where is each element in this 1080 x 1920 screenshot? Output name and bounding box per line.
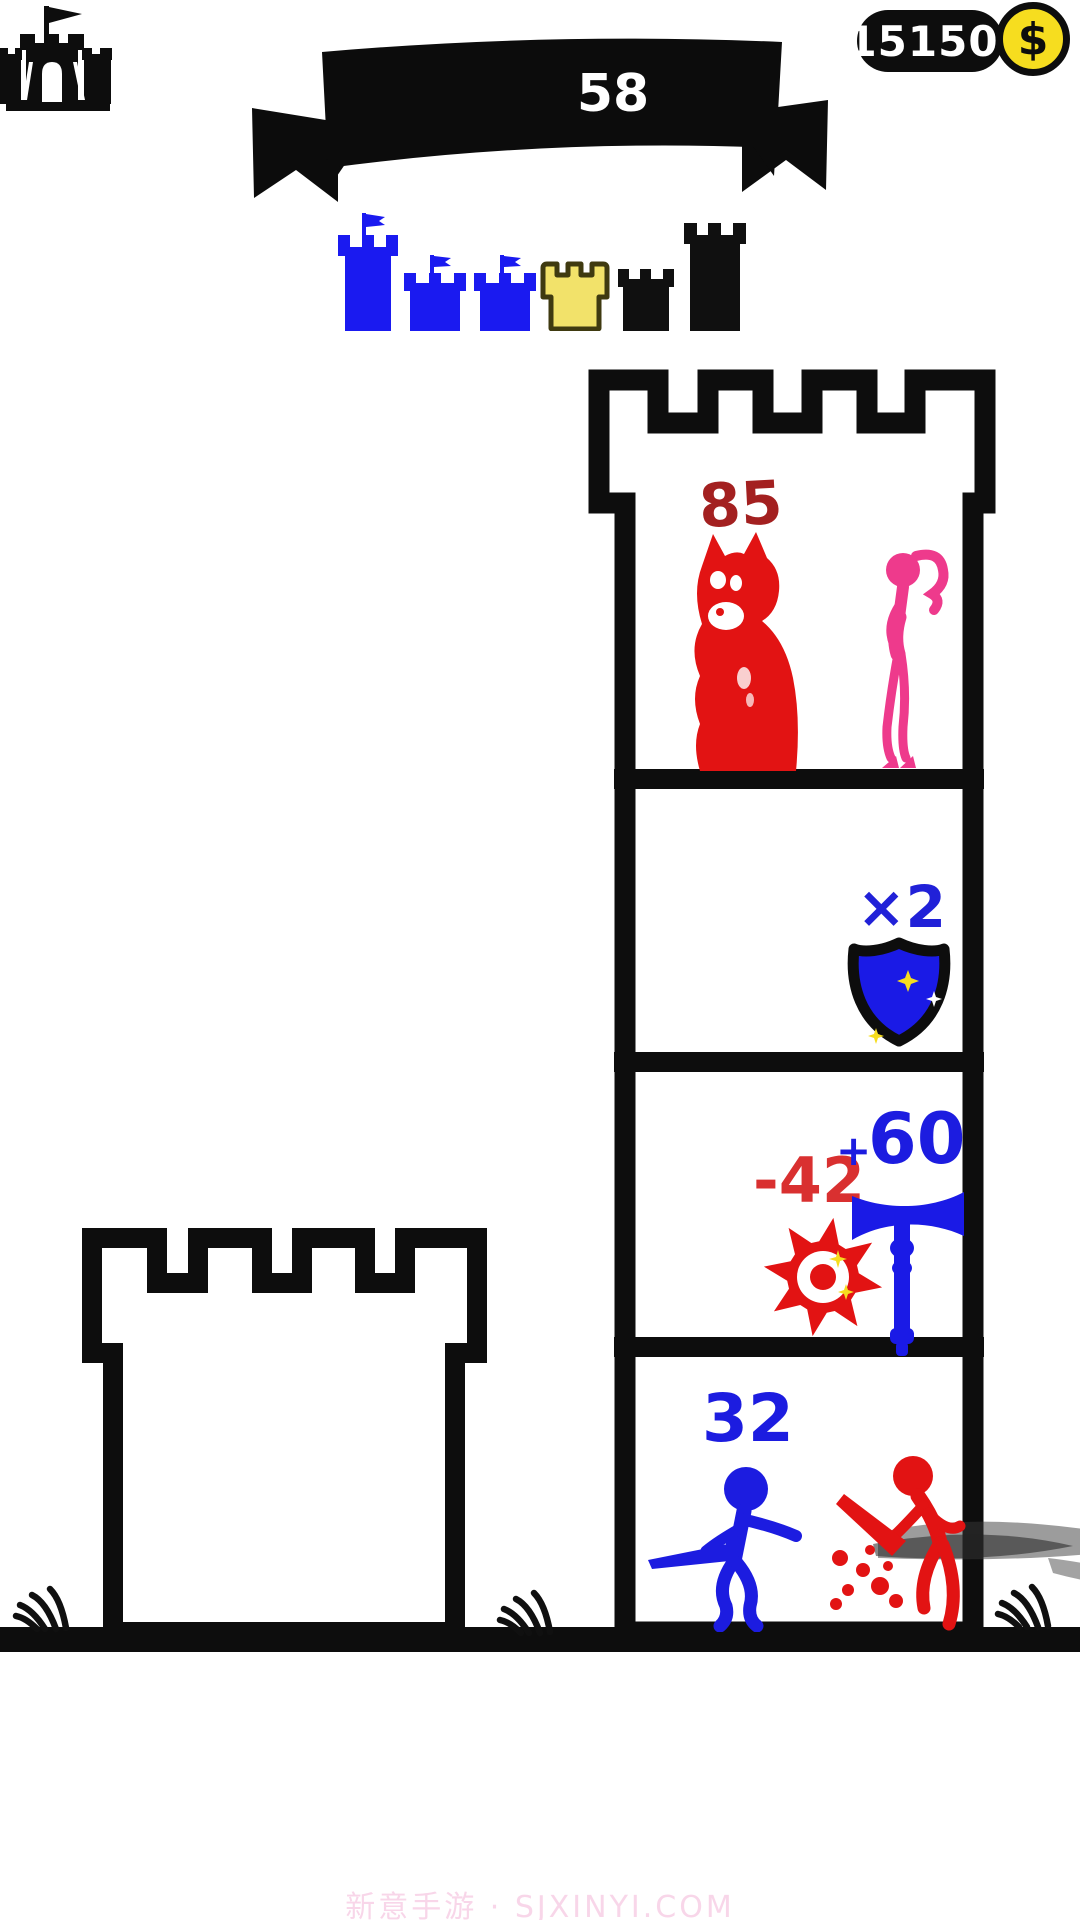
level-number: 58 [553,64,673,124]
progress-castle-2 [404,255,466,331]
game-screen: 15150 $ 58 [0,0,1080,1920]
hammer-buff-label: 60 [868,1104,965,1174]
level-banner [240,30,850,210]
sparkle-icon [824,1246,874,1306]
progress-castle-1 [338,213,398,331]
shield-multiplier-label: ×2 [857,878,946,936]
banner-ribbon [322,39,782,168]
progress-castle-current [538,261,612,331]
floor-divider-2 [614,1052,984,1072]
blue-hero-figure [638,1456,818,1632]
hero-hp-label: 32 [702,1386,794,1452]
red-enemy-hit-figure [818,1438,1080,1638]
coin-icon: $ [996,2,1070,76]
shield-icon [846,936,952,1048]
banner-tail-left [252,108,338,202]
tower-floor-shield[interactable]: ×2 [647,790,951,1052]
watermark-text: 新意手游 · SJXINYI.COM [0,1882,1080,1920]
tower-floor-weapons[interactable]: -42 + 60 [647,1073,951,1337]
grass-left-icon [16,1589,66,1629]
tower-floor-top[interactable]: 85 [647,391,951,770]
progress-castle-5 [618,269,674,331]
coin-amount: 15150 [847,17,998,66]
tower-floor-battle[interactable]: 32 [647,1358,951,1627]
progress-tower-6 [684,223,746,331]
home-castle-icon [0,4,120,112]
left-castle [92,1238,477,1632]
hammer-buff-sign: + [836,1130,871,1172]
left-castle-outline [92,1238,477,1632]
coin-counter: 15150 [857,10,1003,72]
dollar-sign: $ [1018,14,1049,65]
progress-castle-3 [474,255,536,331]
red-monster-figure [680,528,820,773]
pink-princess-figure [858,542,953,770]
